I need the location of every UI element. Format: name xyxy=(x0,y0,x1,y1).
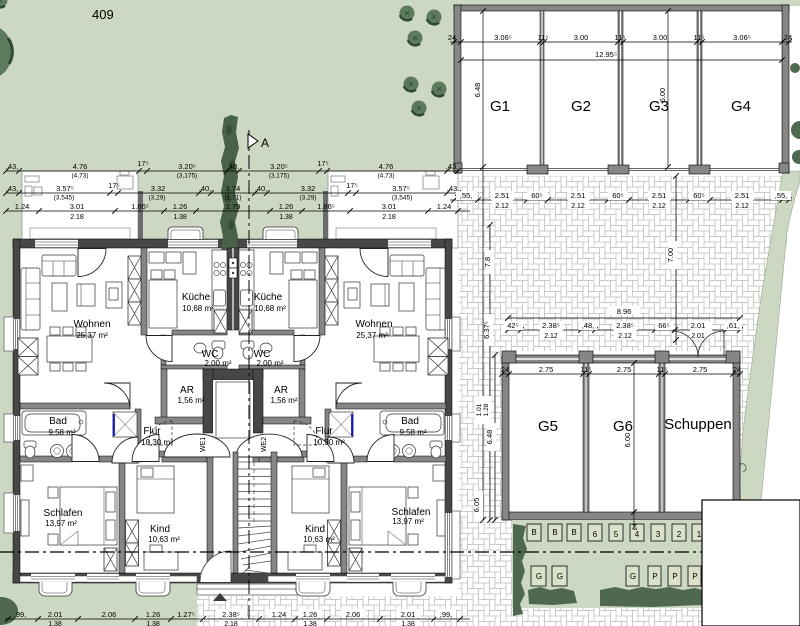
svg-text:10,63 m²: 10,63 m² xyxy=(303,535,335,544)
svg-text:11⁵: 11⁵ xyxy=(694,33,705,42)
svg-text:,40,: ,40, xyxy=(255,184,268,193)
svg-text:1.24: 1.24 xyxy=(15,202,30,211)
svg-text:1.26: 1.26 xyxy=(279,202,294,211)
svg-text:2.51: 2.51 xyxy=(735,191,750,200)
svg-text:G4: G4 xyxy=(731,98,751,115)
svg-text:2.79: 2.79 xyxy=(226,202,241,211)
svg-text:,43,: ,43, xyxy=(6,162,19,171)
svg-text:2: 2 xyxy=(677,530,682,539)
svg-text:Kind: Kind xyxy=(305,524,325,535)
svg-text:2.01: 2.01 xyxy=(691,321,706,330)
svg-text:4: 4 xyxy=(635,530,640,539)
svg-text:3.00: 3.00 xyxy=(574,33,589,42)
svg-text:6.00: 6.00 xyxy=(623,433,632,448)
svg-text:13,97 m²: 13,97 m² xyxy=(392,517,424,526)
svg-text:2.51: 2.51 xyxy=(571,191,586,200)
svg-text:(4,73): (4,73) xyxy=(378,173,395,180)
svg-text:25,37 m²: 25,37 m² xyxy=(76,331,108,340)
svg-text:2.75: 2.75 xyxy=(539,365,554,374)
svg-text:6.48: 6.48 xyxy=(473,83,482,98)
svg-text:3.06⁵: 3.06⁵ xyxy=(494,33,512,42)
svg-text:1.38: 1.38 xyxy=(48,621,62,626)
svg-text:2.06: 2.06 xyxy=(102,610,117,619)
svg-text:,43,: ,43, xyxy=(446,162,459,171)
svg-text:G5: G5 xyxy=(538,418,558,435)
svg-text:1.24: 1.24 xyxy=(272,610,287,619)
svg-text:11⁵: 11⁵ xyxy=(657,365,668,374)
svg-text:11⁵: 11⁵ xyxy=(538,33,549,42)
svg-text:Flur: Flur xyxy=(143,426,161,437)
svg-text:17⁵: 17⁵ xyxy=(346,181,357,190)
svg-text:G2: G2 xyxy=(571,98,591,115)
svg-text:4.76: 4.76 xyxy=(379,162,394,171)
svg-text:1,56 m²: 1,56 m² xyxy=(177,396,204,405)
svg-text:2,00 m²: 2,00 m² xyxy=(256,359,283,368)
svg-text:(1,71): (1,71) xyxy=(225,195,242,202)
svg-text:1.26: 1.26 xyxy=(173,202,188,211)
svg-text:B: B xyxy=(531,528,536,537)
svg-text:(3,545): (3,545) xyxy=(392,195,413,202)
svg-text:P: P xyxy=(692,572,697,581)
svg-text:66⁵: 66⁵ xyxy=(658,321,669,330)
svg-text:17⁵: 17⁵ xyxy=(108,181,119,190)
svg-text:10,63 m²: 10,63 m² xyxy=(148,535,180,544)
svg-text:3.20⁵: 3.20⁵ xyxy=(178,162,196,171)
svg-text:3.00: 3.00 xyxy=(653,33,668,42)
svg-text:1.38: 1.38 xyxy=(303,621,317,626)
svg-text:1.28: 1.28 xyxy=(483,403,490,416)
svg-text:2.12: 2.12 xyxy=(618,333,632,340)
svg-text:2.12: 2.12 xyxy=(571,203,585,210)
svg-text:AR: AR xyxy=(180,385,194,396)
svg-text:11⁵: 11⁵ xyxy=(615,33,626,42)
svg-text:6.48: 6.48 xyxy=(485,430,494,445)
svg-text:60⁵: 60⁵ xyxy=(531,191,542,200)
svg-text:2.38⁵: 2.38⁵ xyxy=(222,610,240,619)
svg-text:1.38: 1.38 xyxy=(146,621,160,626)
svg-text:1.86⁵: 1.86⁵ xyxy=(317,202,335,211)
svg-text:Kind: Kind xyxy=(150,524,170,535)
svg-text:60⁵: 60⁵ xyxy=(693,191,704,200)
svg-text:P: P xyxy=(672,572,677,581)
svg-text:1.86⁵: 1.86⁵ xyxy=(131,202,149,211)
svg-text:(3,175): (3,175) xyxy=(177,173,198,180)
svg-text:25,37 m²: 25,37 m² xyxy=(356,331,388,340)
svg-text:2.12: 2.12 xyxy=(652,203,666,210)
svg-text:Flur: Flur xyxy=(315,426,333,437)
svg-text:Wohnen: Wohnen xyxy=(355,319,392,330)
svg-text:1.27⁵: 1.27⁵ xyxy=(177,610,195,619)
svg-text:,55,: ,55, xyxy=(775,191,788,200)
svg-text:B: B xyxy=(552,528,557,537)
svg-text:409: 409 xyxy=(92,7,114,22)
svg-text:Bad: Bad xyxy=(49,416,67,427)
svg-text:4.76: 4.76 xyxy=(73,162,88,171)
svg-text:(3,545): (3,545) xyxy=(54,195,75,202)
svg-text:,48,: ,48, xyxy=(582,321,595,330)
svg-text:24: 24 xyxy=(733,365,741,374)
svg-text:2.75: 2.75 xyxy=(617,365,632,374)
svg-text:1.24: 1.24 xyxy=(437,202,452,211)
svg-text:1.74: 1.74 xyxy=(226,184,241,193)
svg-text:P: P xyxy=(652,572,657,581)
svg-text:B: B xyxy=(571,528,576,537)
svg-text:(4,73): (4,73) xyxy=(72,173,89,180)
svg-text:2.12: 2.12 xyxy=(735,203,749,210)
svg-text:9,58 m²: 9,58 m² xyxy=(48,428,75,437)
svg-text:12.95⁵: 12.95⁵ xyxy=(595,50,617,59)
svg-text:24: 24 xyxy=(633,523,639,530)
svg-text:Wohnen: Wohnen xyxy=(73,319,110,330)
svg-text:24: 24 xyxy=(448,33,456,42)
svg-text:(3,29): (3,29) xyxy=(149,195,166,202)
svg-text:G6: G6 xyxy=(613,418,633,435)
svg-text:Küche: Küche xyxy=(182,292,211,303)
svg-text:24: 24 xyxy=(501,365,509,374)
svg-text:3.01: 3.01 xyxy=(70,202,85,211)
svg-text:42⁵: 42⁵ xyxy=(507,321,518,330)
svg-text:9,58 m²: 9,58 m² xyxy=(399,428,426,437)
svg-text:3.57⁵: 3.57⁵ xyxy=(56,184,74,193)
svg-text:3.32: 3.32 xyxy=(151,184,166,193)
svg-text:6.00: 6.00 xyxy=(658,88,667,103)
svg-text:A: A xyxy=(261,136,269,150)
svg-text:10,30 m²: 10,30 m² xyxy=(141,438,173,447)
svg-text:6: 6 xyxy=(593,530,598,539)
svg-text:11⁵: 11⁵ xyxy=(581,365,592,374)
svg-text:Schlafen: Schlafen xyxy=(44,508,83,519)
svg-text:,99,: ,99, xyxy=(440,610,453,619)
svg-text:3.20⁵: 3.20⁵ xyxy=(270,162,288,171)
svg-text:2.18: 2.18 xyxy=(382,214,396,221)
svg-text:24: 24 xyxy=(784,33,792,42)
svg-text:G: G xyxy=(557,572,563,581)
svg-text:,55,: ,55, xyxy=(460,191,473,200)
svg-text:2.12: 2.12 xyxy=(544,333,558,340)
svg-text:1.01: 1.01 xyxy=(476,403,483,416)
svg-text:3: 3 xyxy=(656,530,661,539)
svg-text:(3,29): (3,29) xyxy=(300,195,317,202)
svg-text:Schuppen: Schuppen xyxy=(664,416,732,433)
svg-text:,99,: ,99, xyxy=(14,610,27,619)
svg-text:3.32: 3.32 xyxy=(301,184,316,193)
svg-text:2.75: 2.75 xyxy=(693,365,708,374)
svg-text:13,97 m²: 13,97 m² xyxy=(45,519,77,528)
svg-text:10,30 m²: 10,30 m² xyxy=(313,438,345,447)
svg-text:17⁵: 17⁵ xyxy=(317,159,328,168)
svg-text:WE2: WE2 xyxy=(261,437,268,452)
svg-text:G: G xyxy=(630,572,636,581)
svg-text:G1: G1 xyxy=(490,98,510,115)
svg-text:2.18: 2.18 xyxy=(224,621,238,626)
svg-text:6.37⁵: 6.37⁵ xyxy=(482,321,491,339)
svg-text:G: G xyxy=(536,572,542,581)
svg-text:3.06⁵: 3.06⁵ xyxy=(733,33,751,42)
svg-text:,40,: ,40, xyxy=(227,162,240,171)
svg-text:1.38: 1.38 xyxy=(401,621,415,626)
svg-text:10,68 m²: 10,68 m² xyxy=(182,304,214,313)
svg-text:2.38⁵: 2.38⁵ xyxy=(616,321,634,330)
svg-text:2.18: 2.18 xyxy=(70,214,84,221)
svg-text:1,56 m²: 1,56 m² xyxy=(270,396,297,405)
svg-text:7.8: 7.8 xyxy=(483,257,492,267)
svg-text:2,00 m²: 2,00 m² xyxy=(204,359,231,368)
svg-text:2.01: 2.01 xyxy=(401,610,416,619)
svg-text:2.12: 2.12 xyxy=(495,203,509,210)
svg-text:2.51: 2.51 xyxy=(495,191,510,200)
svg-text:5: 5 xyxy=(614,530,619,539)
svg-text:1: 1 xyxy=(697,530,702,539)
svg-text:6.05: 6.05 xyxy=(472,498,481,513)
svg-text:,61,: ,61, xyxy=(727,321,740,330)
svg-text:,40,: ,40, xyxy=(199,184,212,193)
svg-text:(3,175): (3,175) xyxy=(269,173,290,180)
svg-text:8.96: 8.96 xyxy=(617,307,632,316)
svg-text:Bad: Bad xyxy=(401,416,419,427)
svg-text:2.01: 2.01 xyxy=(691,333,705,340)
svg-text:Küche: Küche xyxy=(254,292,283,303)
svg-text:WE1: WE1 xyxy=(200,437,207,452)
svg-text:1.38: 1.38 xyxy=(173,214,187,221)
svg-text:1.38: 1.38 xyxy=(279,214,293,221)
svg-text:17⁵: 17⁵ xyxy=(137,159,148,168)
svg-text:60⁵: 60⁵ xyxy=(612,191,623,200)
svg-text:1.26: 1.26 xyxy=(146,610,161,619)
svg-text:2.51: 2.51 xyxy=(652,191,667,200)
svg-text:2.06: 2.06 xyxy=(346,610,361,619)
svg-text:7.00: 7.00 xyxy=(666,248,675,263)
svg-text:3.57⁵: 3.57⁵ xyxy=(392,184,410,193)
svg-text:1.26: 1.26 xyxy=(303,610,318,619)
svg-text:,43,: ,43, xyxy=(6,184,19,193)
svg-text:2.01: 2.01 xyxy=(48,610,63,619)
svg-text:2.38⁵: 2.38⁵ xyxy=(542,321,560,330)
svg-text:3.01: 3.01 xyxy=(382,202,397,211)
svg-text:AR: AR xyxy=(274,385,288,396)
svg-text:10,68 m²: 10,68 m² xyxy=(254,304,286,313)
